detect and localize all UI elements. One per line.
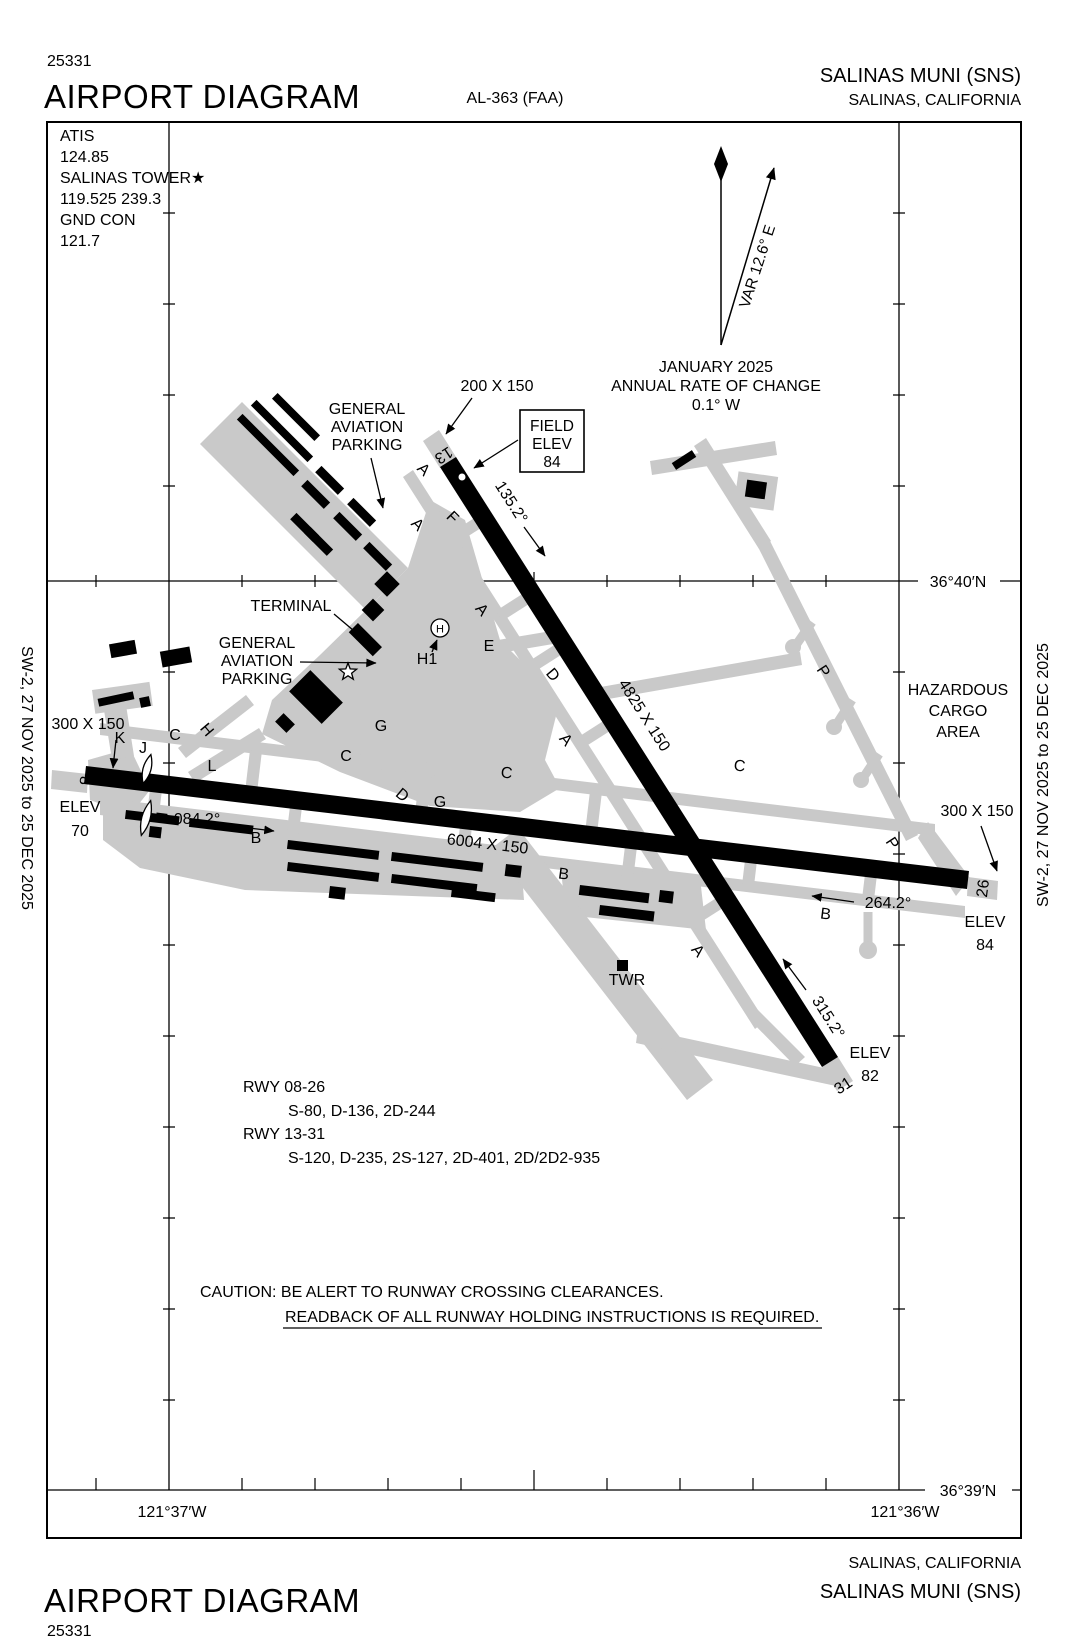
latitude-label-36-39: 36°39′N <box>940 1483 997 1500</box>
ga-south-line3: PARKING <box>222 671 293 688</box>
taxiway-letter: G <box>375 718 387 735</box>
field-elev-line1: FIELD <box>530 418 574 435</box>
field-elev-value: 84 <box>543 454 561 471</box>
page-title-bottom: AIRPORT DIAGRAM <box>44 1582 360 1619</box>
runway-data-block: RWY 08-26 S-80, D-136, 2D-244 RWY 13-31 … <box>243 1079 600 1167</box>
procedure-id: AL-363 (FAA) <box>467 90 564 107</box>
rwy1331-codes: S-120, D-235, 2S-127, 2D-401, 2D/2D2-935 <box>288 1150 600 1167</box>
comm-frequencies: ATIS 124.85 SALINAS TOWER★ 119.525 239.3… <box>60 128 205 250</box>
rwy0826-codes: S-80, D-136, 2D-244 <box>288 1103 436 1120</box>
rwy26-heading: 264.2° <box>865 895 911 912</box>
h1-label: H1 <box>417 651 438 668</box>
northeast-building <box>745 480 767 500</box>
hazardous-line1: HAZARDOUS <box>908 682 1008 699</box>
hazardous-line2: CARGO <box>929 703 988 720</box>
hazardous-line3: AREA <box>936 724 980 741</box>
caution-line2: READBACK OF ALL RUNWAY HOLDING INSTRUCTI… <box>285 1309 819 1326</box>
taxiway-letter: L <box>208 758 217 775</box>
comm-ground-freq: 121.7 <box>60 233 100 250</box>
taxiway-letter: B <box>251 830 262 847</box>
rwy31-elev-value: 82 <box>861 1068 879 1085</box>
airport-name-bottom: SALINAS MUNI (SNS) <box>820 1581 1021 1603</box>
ga-south-line2: AVIATION <box>221 653 293 670</box>
ga-north-line2: AVIATION <box>331 419 403 436</box>
ga-north-line3: PARKING <box>332 437 403 454</box>
rwy26-number: 26 <box>974 878 993 898</box>
runup-pad <box>859 941 877 959</box>
runup-pad <box>826 719 842 735</box>
hangar-building <box>139 696 151 708</box>
taxiway-letter: C <box>733 757 747 775</box>
comm-ground-label: GND CON <box>60 212 136 229</box>
rwy26-elev-label: ELEV <box>965 914 1006 931</box>
ga-south-line1: GENERAL <box>219 635 296 652</box>
airport-diagram-page: 25331 AIRPORT DIAGRAM AL-363 (FAA) SALIN… <box>0 0 1076 1650</box>
taxiway-letter: N <box>151 811 169 825</box>
comm-tower-freqs: 119.525 239.3 <box>60 191 161 208</box>
rwy13-stub-size: 200 X 150 <box>461 378 534 395</box>
hangar-building <box>149 826 162 838</box>
taxiway-letter: J <box>139 740 147 757</box>
hangar-building <box>160 647 192 668</box>
taxiway-letter: B <box>819 905 832 923</box>
rwy08-heading: 084.2° <box>174 811 220 828</box>
connector <box>245 750 262 791</box>
tower-label: TWR <box>609 972 645 989</box>
taxiway-letter: E <box>484 638 495 655</box>
chart-number-bottom: 25331 <box>47 1623 92 1640</box>
hangar-building <box>109 640 137 658</box>
rwy26-stub-size: 300 X 150 <box>941 803 1014 820</box>
caution-line1: CAUTION: BE ALERT TO RUNWAY CROSSING CLE… <box>200 1284 664 1301</box>
runway13-dot-icon <box>459 474 466 481</box>
edition-note-left: SW-2, 27 NOV 2025 to 25 DEC 2025 <box>18 646 35 910</box>
comm-atis-freq: 124.85 <box>60 149 109 166</box>
rwy26-elev-value: 84 <box>976 937 994 954</box>
caution-note: CAUTION: BE ALERT TO RUNWAY CROSSING CLE… <box>200 1284 822 1328</box>
annual-rate-label: ANNUAL RATE OF CHANGE <box>611 378 821 395</box>
airport-diagram-chart: 25331 AIRPORT DIAGRAM AL-363 (FAA) SALIN… <box>0 0 1076 1650</box>
rwy8-stub-size: 300 X 150 <box>52 716 125 733</box>
hangar-building <box>272 393 320 441</box>
longitude-label-121-36: 121°36′W <box>871 1504 941 1521</box>
hangar-building <box>505 864 522 878</box>
comm-atis-label: ATIS <box>60 128 94 145</box>
comm-tower-label: SALINAS TOWER★ <box>60 170 205 187</box>
taxiway-letter: G <box>434 794 446 811</box>
annual-rate-value: 0.1° W <box>692 397 741 414</box>
rwy13-heading-arrow <box>524 527 545 556</box>
ga-north-pointer <box>371 458 383 508</box>
rwy13-heading: 135.2° <box>491 478 530 526</box>
page-title-top: AIRPORT DIAGRAM <box>44 78 360 115</box>
chart-number-top: 25331 <box>47 53 92 70</box>
rwy26-stub-pointer <box>981 826 997 871</box>
true-north-arrowhead-icon <box>714 146 728 182</box>
latitude-label-36-40: 36°40′N <box>930 574 987 591</box>
taxiway-p-strip <box>756 537 918 841</box>
field-elevation-box: FIELD ELEV 84 <box>474 410 584 472</box>
variation-date: JANUARY 2025 <box>659 359 773 376</box>
helipad-h-label: H <box>436 624 444 636</box>
runup-pad <box>853 772 869 788</box>
variation-label: VAR 12.6° E <box>736 223 779 310</box>
city-name-top: SALINAS, CALIFORNIA <box>849 92 1022 109</box>
hangar-building <box>659 890 674 904</box>
rwy1331-label: RWY 13-31 <box>243 1126 325 1143</box>
compass-rose: VAR 12.6° E JANUARY 2025 ANNUAL RATE OF … <box>611 146 821 414</box>
tower-building <box>617 960 628 971</box>
field-elev-line2: ELEV <box>532 436 572 453</box>
airport-name-top: SALINAS MUNI (SNS) <box>820 65 1021 87</box>
rwy0826-label: RWY 08-26 <box>243 1079 325 1096</box>
taxiway-letter: C <box>340 748 352 765</box>
taxiway-letter: C <box>169 727 181 744</box>
hangar-building <box>329 886 346 900</box>
field-elev-pointer <box>474 440 518 468</box>
taxiway-letter: C <box>500 764 514 782</box>
taxiway-letter: B <box>557 865 570 883</box>
terminal-label: TERMINAL <box>251 598 332 615</box>
rwy31-elev-label: ELEV <box>850 1045 891 1062</box>
city-name-bottom: SALINAS, CALIFORNIA <box>849 1555 1022 1572</box>
longitude-label-121-37: 121°37′W <box>138 1504 208 1521</box>
rwy8-elev-value: 70 <box>71 823 89 840</box>
rwy8-elev-label: ELEV <box>60 799 101 816</box>
ga-north-line1: GENERAL <box>329 401 406 418</box>
taxiway-letter: K <box>115 730 126 747</box>
rwy13-stub-pointer <box>446 398 472 434</box>
edition-note-right: SW-2, 27 NOV 2025 to 25 DEC 2025 <box>1035 643 1052 907</box>
